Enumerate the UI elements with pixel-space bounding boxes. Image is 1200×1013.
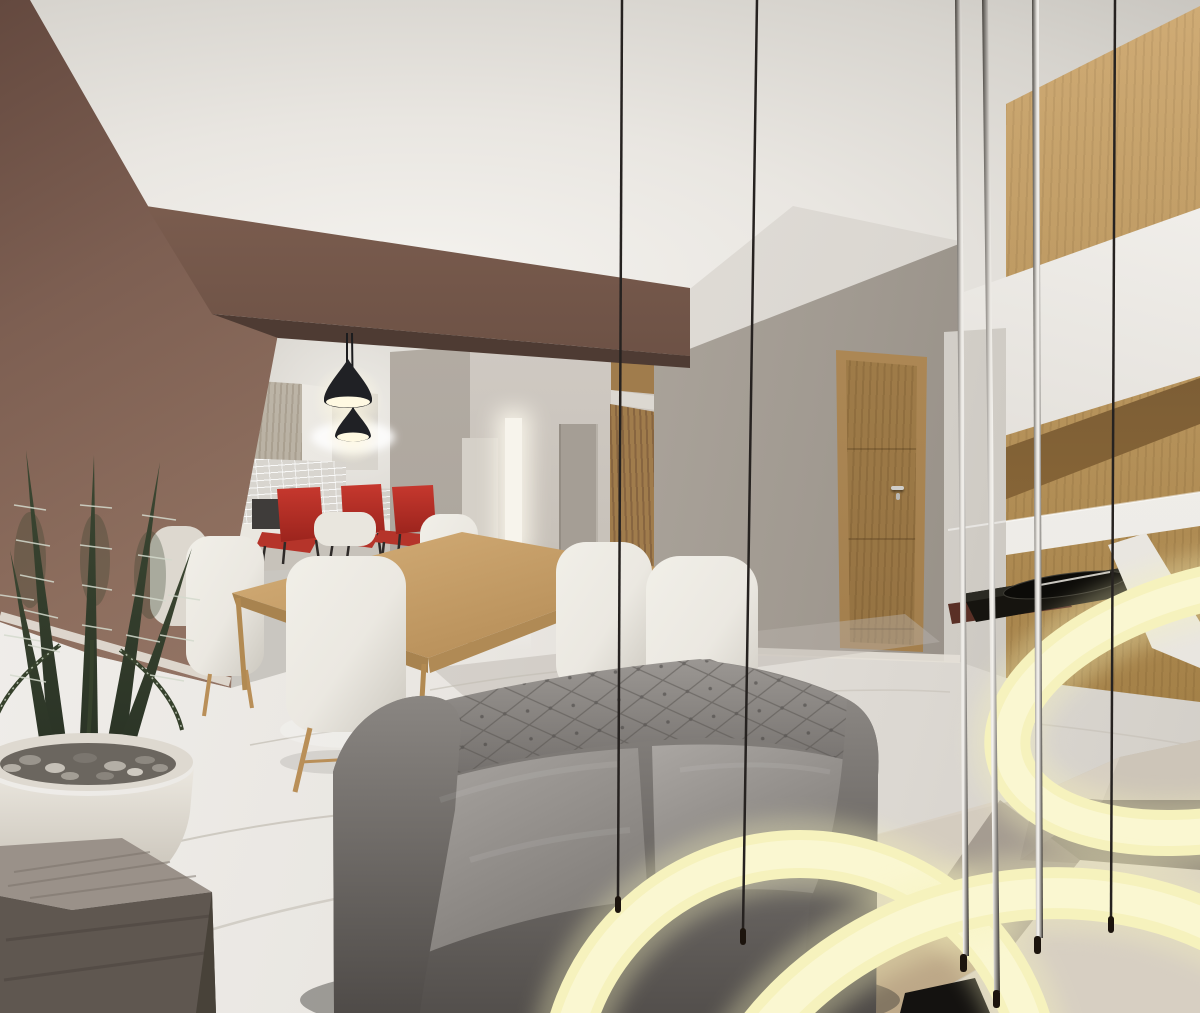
pendant-lights [311, 333, 395, 464]
scene-details [0, 0, 1200, 1013]
dining-chair-far-back [314, 512, 376, 546]
side-table [0, 838, 216, 1013]
dining-chair [186, 536, 264, 716]
planter [0, 450, 200, 902]
interior-render [0, 0, 1200, 1013]
